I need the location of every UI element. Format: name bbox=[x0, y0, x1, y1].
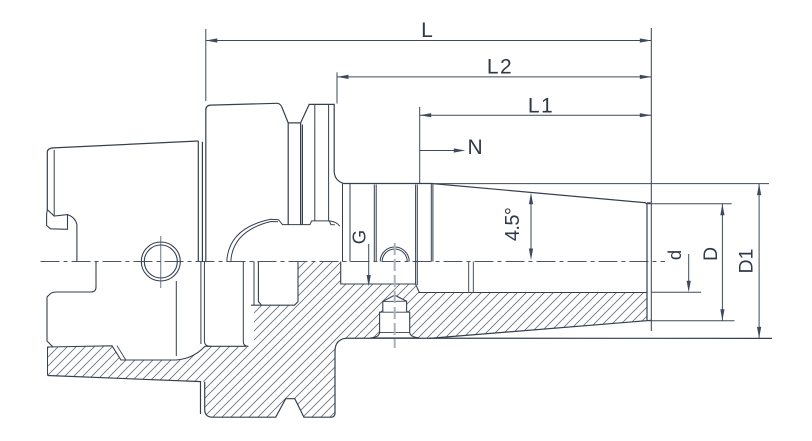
svg-text:L2: L2 bbox=[487, 56, 513, 79]
svg-text:G: G bbox=[348, 230, 369, 244]
svg-text:D1: D1 bbox=[736, 249, 758, 274]
svg-text:D: D bbox=[700, 247, 722, 261]
svg-text:L: L bbox=[421, 19, 433, 42]
svg-text:N: N bbox=[468, 136, 483, 159]
svg-text:L1: L1 bbox=[528, 95, 554, 118]
svg-text:4.5°: 4.5° bbox=[502, 208, 524, 241]
svg-text:d: d bbox=[664, 250, 685, 260]
